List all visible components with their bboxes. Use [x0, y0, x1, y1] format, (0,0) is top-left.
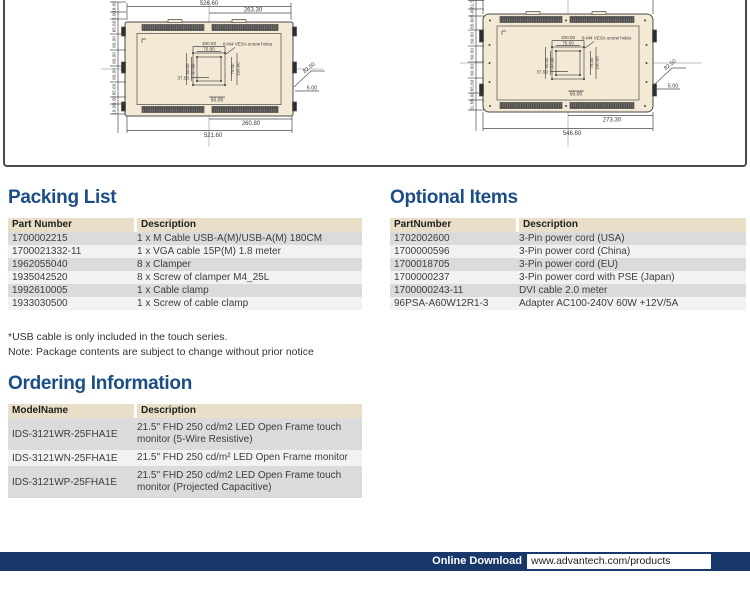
section-title-optional-items: Optional Items [390, 187, 518, 209]
dim-label: 50.00 [544, 57, 549, 69]
dim-label: 260.80 [242, 121, 261, 127]
dim-label: 37.50 [178, 76, 190, 81]
table-row: 1992610005 1 x Cable clamp [8, 284, 362, 297]
dim-label: 65.60 [112, 20, 117, 32]
vesa-note-label: 8-M4 VESA screw holes [582, 36, 632, 41]
dim-label: 60.00 [470, 64, 475, 76]
part-number-cell: 1700021332-11 [8, 246, 137, 257]
column-header: Description [519, 218, 746, 232]
vesa-note-label: 8-M4 VESA screw holes [223, 42, 273, 47]
datasheet-page: 526.60 263.30 260.80 521.60 19.00 5.00 6… [0, 0, 750, 591]
drawing-lines [460, 0, 702, 147]
part-number-cell: 96PSA-A60W12R1-3 [390, 298, 519, 309]
part-number-cell: 1700000243-11 [390, 285, 519, 296]
packing-list-notes: *USB cable is only included in the touch… [8, 330, 368, 360]
description-cell: 21.5" FHD 250 cd/m² LED Open Frame monit… [137, 452, 362, 464]
online-download-label: Online Download [380, 552, 522, 571]
table-header-row: ModelName Description [8, 404, 362, 418]
note-line: Note: Package contents are subject to ch… [8, 345, 368, 360]
column-header: Description [137, 218, 362, 232]
table-row: 1935042520 8 x Screw of clamper M4_25L [8, 271, 362, 284]
download-url-box[interactable]: www.advantech.com/products [527, 554, 711, 569]
description-cell: 21.5" FHD 250 cd/m2 LED Open Frame touch… [137, 422, 362, 446]
dim-label: 5.00 [112, 11, 117, 20]
description-cell: 8 x Clamper [137, 259, 362, 271]
rear-view-drawing-right: 273.30 546.60 31.5 5.00 65.60 60.00 60.0… [440, 0, 750, 150]
table-row: 1700000596 3-Pin power cord (China) [390, 245, 746, 258]
description-cell: 21.5" FHD 250 cd/m2 LED Open Frame touch… [137, 470, 362, 494]
dim-label: 5.00 [470, 8, 475, 17]
column-header: Part Number [8, 218, 134, 232]
dim-label: 75.00 [203, 47, 215, 52]
dim-label: 100.00 [561, 35, 575, 40]
rear-view-drawing-left: 526.60 263.30 260.80 521.60 19.00 5.00 6… [85, 0, 335, 150]
table-row: 1933030500 1 x Screw of cable clamp [8, 297, 362, 310]
table-row: 1700002215 1 x M Cable USB-A(M)/USB-A(M)… [8, 232, 362, 245]
column-header: ModelName [8, 404, 134, 418]
dim-label: 50.00 [570, 92, 583, 98]
model-name-cell: IDS-3121WP-25FHA1E [8, 477, 137, 488]
section-title-ordering-information: Ordering Information [8, 373, 192, 395]
optional-items-table: PartNumber Description 1702002600 3-Pin … [390, 218, 746, 310]
description-cell: 1 x Cable clamp [137, 285, 362, 297]
description-cell: 1 x Screw of cable clamp [137, 298, 362, 310]
dim-label: 273.30 [603, 118, 622, 124]
drawing-lines [101, 0, 325, 147]
dim-label: 60.00 [112, 36, 117, 48]
description-cell: 3-Pin power cord (USA) [519, 233, 746, 245]
table-row: IDS-3121WP-25FHA1E 21.5" FHD 250 cd/m2 L… [8, 466, 362, 498]
section-title-packing-list: Packing List [8, 187, 116, 209]
dim-label: 100.00 [202, 41, 216, 46]
table-row: 1700000237 3-Pin power cord with PSE (Ja… [390, 271, 746, 284]
description-cell: 1 x VGA cable 15P(M) 1.8 meter [137, 246, 362, 258]
part-number-cell: 1962055040 [8, 259, 137, 270]
description-cell: 3-Pin power cord with PSE (Japan) [519, 272, 746, 284]
dim-label: 19.00 [112, 1, 117, 13]
table-row: 1700000243-11 DVI cable 2.0 meter [390, 284, 746, 297]
table-row: IDS-3121WN-25FHA1E 21.5" FHD 250 cd/m² L… [8, 450, 362, 466]
dim-label: 65.60 [470, 79, 475, 91]
model-name-cell: IDS-3121WN-25FHA1E [8, 453, 137, 464]
dim-label: 5.00 [307, 86, 318, 92]
footer-bar: Online Download www.advantech.com/produc… [0, 552, 750, 571]
column-header: PartNumber [390, 218, 516, 232]
part-number-cell: 1700002215 [8, 233, 137, 244]
table-row: 96PSA-A60W12R1-3 Adapter AC100-240V 60W … [390, 297, 746, 310]
part-number-cell: 1702002600 [390, 233, 519, 244]
dim-label: 5.00 [668, 84, 679, 90]
dim-label: 75.00 [562, 41, 574, 46]
dim-label: 526.60 [200, 1, 219, 7]
dim-label: 65.60 [112, 83, 117, 95]
dim-label: 60.00 [112, 52, 117, 64]
description-cell: Adapter AC100-240V 60W +12V/5A [519, 298, 746, 310]
description-cell: 3-Pin power cord (China) [519, 246, 746, 258]
table-header-row: Part Number Description [8, 218, 362, 232]
table-header-row: PartNumber Description [390, 218, 746, 232]
dim-label: 521.60 [204, 133, 223, 139]
table-row: 1962055040 8 x Clamper [8, 258, 362, 271]
dim-label: 19.00 [112, 103, 117, 115]
dim-label: 37.50 [537, 70, 549, 75]
table-row: 1702002600 3-Pin power cord (USA) [390, 232, 746, 245]
dim-label: 100.00 [236, 62, 241, 76]
ordering-information-table: ModelName Description IDS-3121WR-25FHA1E… [8, 404, 362, 498]
note-line: *USB cable is only included in the touch… [8, 330, 368, 345]
part-number-cell: 1935042520 [8, 272, 137, 283]
model-name-cell: IDS-3121WR-25FHA1E [8, 429, 137, 440]
description-cell: DVI cable 2.0 meter [519, 285, 746, 297]
dim-label: 60.00 [112, 68, 117, 80]
column-header: Description [137, 404, 362, 418]
dim-label: 60.00 [470, 32, 475, 44]
part-number-cell: 1700018705 [390, 259, 519, 270]
description-cell: 3-Pin power cord (EU) [519, 259, 746, 271]
packing-list-table: Part Number Description 1700002215 1 x M… [8, 218, 362, 310]
part-number-cell: 1992610005 [8, 285, 137, 296]
dim-label: 60.00 [470, 48, 475, 60]
dim-label: 263.30 [244, 8, 263, 14]
dim-label: 65.60 [470, 17, 475, 29]
description-cell: 1 x M Cable USB-A(M)/USB-A(M) 180CM [137, 233, 362, 245]
dim-label: 37.50 [550, 57, 555, 69]
dim-label: 100.00 [595, 56, 600, 70]
dim-label: 37.50 [191, 63, 196, 75]
part-number-cell: 1700000596 [390, 246, 519, 257]
part-number-cell: 1700000237 [390, 272, 519, 283]
dim-label: 75.00 [230, 63, 235, 75]
dim-label: 546.60 [563, 131, 582, 137]
dim-label: 31.50 [470, 99, 475, 111]
dim-label: 31.5 [470, 0, 475, 9]
table-row: 1700018705 3-Pin power cord (EU) [390, 258, 746, 271]
table-row: 1700021332-11 1 x VGA cable 15P(M) 1.8 m… [8, 245, 362, 258]
description-cell: 8 x Screw of clamper M4_25L [137, 272, 362, 284]
dim-label: 50.00 [185, 63, 190, 75]
table-row: IDS-3121WR-25FHA1E 21.5" FHD 250 cd/m2 L… [8, 418, 362, 450]
dim-label: 75.00 [589, 57, 594, 69]
dim-label: 50.00 [211, 98, 224, 104]
part-number-cell: 1933030500 [8, 298, 137, 309]
